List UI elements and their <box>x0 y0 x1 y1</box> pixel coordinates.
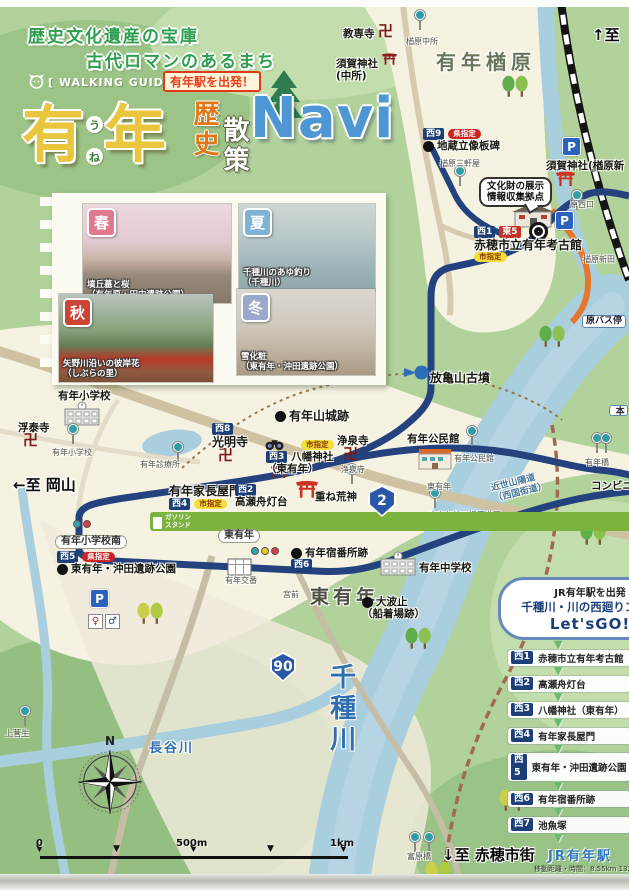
label-narahara-shinden: 楢原新田 <box>583 255 615 264</box>
label-onamidomari: 大波止（船着場跡） <box>362 596 425 621</box>
parking-icon: P <box>90 589 109 608</box>
photo-caption: 千種川のあゆ釣り（千種川） <box>243 268 311 289</box>
title-furigana-2: ね <box>86 148 103 165</box>
binoculars-icon <box>265 437 284 451</box>
badge-県指定: 県指定 <box>448 129 481 139</box>
badge-県指定: 県指定 <box>82 552 115 562</box>
film-perforation <box>40 197 52 381</box>
scan-edge-bottom <box>0 874 629 890</box>
badge-西1: 西1 <box>511 651 533 664</box>
torii-icon <box>556 170 575 186</box>
poi-dot-icon <box>423 141 434 152</box>
scan-edge-top <box>0 0 629 7</box>
bus-stop-icon <box>467 426 477 446</box>
parking-icon: P <box>562 137 581 156</box>
label-kominkan: 有年公民館 <box>407 433 460 445</box>
badge-西5: 西5 <box>57 551 78 563</box>
photo-caption: 矢野川沿いの彼岸花（しぶらの里） <box>63 359 140 380</box>
bus-stop-icon <box>173 442 183 462</box>
course-item: 西5東有年・沖田遺跡公園 <box>508 753 629 781</box>
label-to-north: ↑至 <box>592 27 620 45</box>
badge-西4: 西4 <box>169 498 190 510</box>
label-hokiyama-kofun: 放亀山古墳 <box>430 371 490 385</box>
course-item: 西3八幡神社（東有年） <box>508 702 629 718</box>
course-end-station: JR有年駅 <box>548 845 612 864</box>
season-badge: 秋 <box>63 298 92 327</box>
bus-stop-icon <box>601 433 611 453</box>
trees-icon <box>539 324 567 349</box>
badge-西6: 西6 <box>511 793 533 806</box>
course-arrow-icon: ▼ <box>554 807 629 817</box>
badge-西2: 西2 <box>511 677 533 690</box>
badge-西5: 西5 <box>511 754 527 780</box>
course-arrow-icon: ▼ <box>554 781 629 791</box>
course-panel: JR有年駅を出発 千種川・川の西廻りコース Let'sGO! ▼西1赤穂市立有年… <box>496 577 629 874</box>
compass-icon <box>74 746 146 818</box>
course-item: 西7池魚塚 <box>508 817 629 833</box>
course-arrow-icon: ▼ <box>554 718 629 728</box>
bus-stop-icon <box>68 424 78 444</box>
label-josenji-bus: 浄泉寺 <box>341 465 365 474</box>
season-photo-4: 冬雪化粧（東有年・沖田遺跡公園） <box>237 289 375 375</box>
course-item: 西1赤穂市立有年考古館 <box>508 650 629 666</box>
season-badge: 冬 <box>241 293 270 322</box>
photo-caption: 雪化粧（東有年・沖田遺跡公園） <box>241 352 343 373</box>
label-conbini: コンビニエ <box>591 480 629 492</box>
course-arrow-icon: ▼ <box>554 640 629 650</box>
title-sub-sansaku: 散策 <box>216 116 253 176</box>
course-cloud-bubble: JR有年駅を出発 千種川・川の西廻りコース Let'sGO! <box>498 577 629 640</box>
title-main-1: 有 <box>22 84 84 174</box>
label-partial-right: 本 <box>609 405 628 416</box>
course-item-label: 有年宿番所跡 <box>538 792 595 806</box>
season-photo-3: 秋矢野川沿いの彼岸花（しぶらの里） <box>59 294 213 382</box>
trees-icon <box>137 601 165 626</box>
poi-dot-icon <box>291 548 302 559</box>
course-arrow-icon: ▼ <box>554 833 629 843</box>
label-to-okayama: ←至 岡山 <box>13 477 76 495</box>
school-icon <box>379 551 417 577</box>
toilet-icon: ♀♂ <box>88 614 120 629</box>
label-josenji: 浄泉寺 <box>337 435 369 447</box>
label-koban: 有年交番 <box>225 576 257 585</box>
course-item-label: 八幡神社（東有年） <box>538 703 624 717</box>
bus-stop-icon <box>455 166 465 186</box>
label-jizo-ryuzo-itabi: 西9県指定地蔵立像板碑 <box>423 128 500 153</box>
badge-西7: 西7 <box>511 818 533 831</box>
community-hall-icon <box>418 448 452 470</box>
label-chikusagawa: 千種川 <box>325 663 356 756</box>
scale-label: 500m <box>176 838 207 849</box>
police-box-icon <box>227 558 252 576</box>
badge-西2: 西2 <box>235 484 256 496</box>
label-kasane-kojin: 重ね荒神 <box>315 491 357 503</box>
badge-市指定: 市指定 <box>194 499 227 509</box>
bus-stop-icon <box>410 832 420 852</box>
bus-stop-icon <box>424 832 434 852</box>
tagline-1: 歴史文化遺産の宝庫 <box>28 22 199 47</box>
label-hara-nishiguchi: 原西口 <box>570 200 594 209</box>
badge-西1: 西1 <box>474 226 495 238</box>
course-item: 西6有年宿番所跡 <box>508 791 629 807</box>
label-une-junior-high: 有年中学校 <box>419 562 472 574</box>
traffic-signal-icon <box>73 520 91 528</box>
scale-label: 1km <box>330 838 354 849</box>
title-navi: Navi <box>250 86 394 151</box>
title-main-2: 年 <box>104 84 166 174</box>
label-une-elementary-bus: 有年小学校 <box>52 448 92 457</box>
label-hasegawa: 長谷川 <box>149 741 194 756</box>
course-item-label: 東有年・沖田遺跡公園 <box>532 760 627 774</box>
label-higashiune-crossing: 東有年 <box>218 529 260 543</box>
badge-西3: 西3 <box>266 451 287 463</box>
course-item-label: 池魚塚 <box>538 818 567 832</box>
course-go: Let'sGO! <box>511 615 629 633</box>
season-badge: 夏 <box>243 208 272 237</box>
label-kokokan: 西1東5赤穂市立有年考古館市指定 <box>474 226 582 262</box>
course-arrow-icon: ▼ <box>554 744 629 754</box>
scale-tick-icon: ▼ <box>113 845 120 854</box>
label-unebashi: 有年橋 <box>585 458 609 467</box>
label-hara-busstop: 原バス停 <box>582 315 626 328</box>
course-arrow-icon: ▼ <box>554 692 629 702</box>
trees-icon <box>405 626 433 651</box>
manji-icon: 卍 <box>218 448 233 463</box>
manji-icon: 卍 <box>378 24 393 39</box>
label-suga-jinja-chusho: 須賀神社(中所) <box>336 58 378 83</box>
label-okita-park: 西5県指定東有年・沖田遺跡公園 <box>57 551 176 576</box>
badge-西4: 西4 <box>511 729 533 742</box>
trees-icon <box>502 74 530 99</box>
scale-bar <box>40 856 348 859</box>
badge-市指定: 市指定 <box>301 440 334 450</box>
badge-東5: 東5 <box>499 226 520 238</box>
label-fudaiji: 浮泰寺 <box>18 422 50 434</box>
scale-tick-icon: ▼ <box>267 845 274 854</box>
label-nagayamon: 有年家長屋門西4市指定 <box>169 484 241 510</box>
label-narahara-chusho: 楢原中所 <box>406 37 438 46</box>
course-item-label: 赤穂市立有年考古館 <box>538 651 624 665</box>
course-start-line: JR有年駅を出発 <box>511 584 629 599</box>
kofun-icon <box>403 365 429 380</box>
label-kominkan-bus: 有年公民館 <box>454 454 494 463</box>
seasonal-photo-panel: 春墳丘墓と桜（有年原・田中遺跡公園）夏千種川のあゆ釣り（千種川）秋矢野川沿いの彼… <box>52 193 386 385</box>
course-item-label: 高瀬舟灯台 <box>538 677 586 691</box>
label-shinryojo: 有年診療所 <box>140 460 180 469</box>
season-photo-2: 夏千種川のあゆ釣り（千種川） <box>239 204 375 291</box>
course-distance-note: 移動距離・時間：8.55km 132分 <box>534 864 629 874</box>
course-arrow-icon: ▼ <box>554 666 629 676</box>
poi-dot-icon <box>57 564 68 575</box>
label-tomihara-bashi: 富原橋 <box>407 852 431 861</box>
label-narahara-sangenya: 楢原三軒屋 <box>440 159 480 168</box>
poi-dot-icon <box>362 597 373 608</box>
badge-市指定: 市指定 <box>474 252 507 262</box>
bus-stop-icon <box>20 706 30 726</box>
label-kyosenji: 教専寺 <box>343 28 375 40</box>
depart-badge: 有年駅を出発！ <box>163 71 261 92</box>
course-name: 千種川・川の西廻りコース <box>511 599 629 615</box>
compass-rose: N <box>74 734 146 822</box>
label-une-sho-minami: 有年小学校南 <box>55 535 127 549</box>
bubble-bunkazai: 文化財の展示情報収集拠点 <box>479 177 552 207</box>
scale-label: 0 <box>36 838 43 849</box>
badge-西6: 西6 <box>291 559 312 571</box>
mascot-icon <box>28 74 45 93</box>
tagline-2: 古代ロマンのあるまち <box>86 47 276 72</box>
badge-西3: 西3 <box>511 703 533 716</box>
label-miyamae: 宮前 <box>283 590 299 599</box>
title-furigana-1: う <box>86 116 103 133</box>
poi-dot-icon <box>275 411 286 422</box>
label-kamisugao: 上菅生 <box>5 729 29 738</box>
manji-icon: 卍 <box>343 447 358 462</box>
badge-西9: 西9 <box>423 128 444 140</box>
course-item: 西4有年家長屋門 <box>508 728 629 744</box>
season-photo-1: 春墳丘墓と桜（有年原・田中遺跡公園） <box>83 204 231 303</box>
torii-icon <box>382 52 397 65</box>
label-shukubansho: 有年宿番所跡西6 <box>291 547 368 572</box>
label-uneyama-castle: 有年山城跡 <box>275 409 349 423</box>
label-une-elementary: 有年小学校 <box>58 390 111 402</box>
manji-icon: 卍 <box>23 433 38 448</box>
label-suga-jinja-narahara: 須賀神社(楢原新 <box>546 160 624 172</box>
course-item: 西2高瀬舟灯台 <box>508 676 629 692</box>
bus-stop-icon <box>415 10 425 30</box>
walking-guide-map-page: 歴史文化遺産の宝庫 古代ロマンのあるまち [ WALKING GUIDE MAP… <box>0 0 629 890</box>
traffic-signal-icon <box>251 547 279 555</box>
label-une-narahara: 有年楢原 <box>436 51 536 75</box>
season-badge: 春 <box>87 208 116 237</box>
label-higashiune-bus: 東有年 <box>427 482 451 491</box>
label-takasebune: 西2高瀬舟灯台 <box>235 484 288 509</box>
badge-西8: 西8 <box>212 423 233 435</box>
label-shi-shitei-hachiman: 市指定 <box>301 440 336 450</box>
label-hachiman-jinja: 西3八幡神社（東有年） <box>266 451 333 476</box>
course-item-label: 有年家長屋門 <box>538 729 595 743</box>
label-komyoji: 西8光明寺 <box>212 423 248 449</box>
